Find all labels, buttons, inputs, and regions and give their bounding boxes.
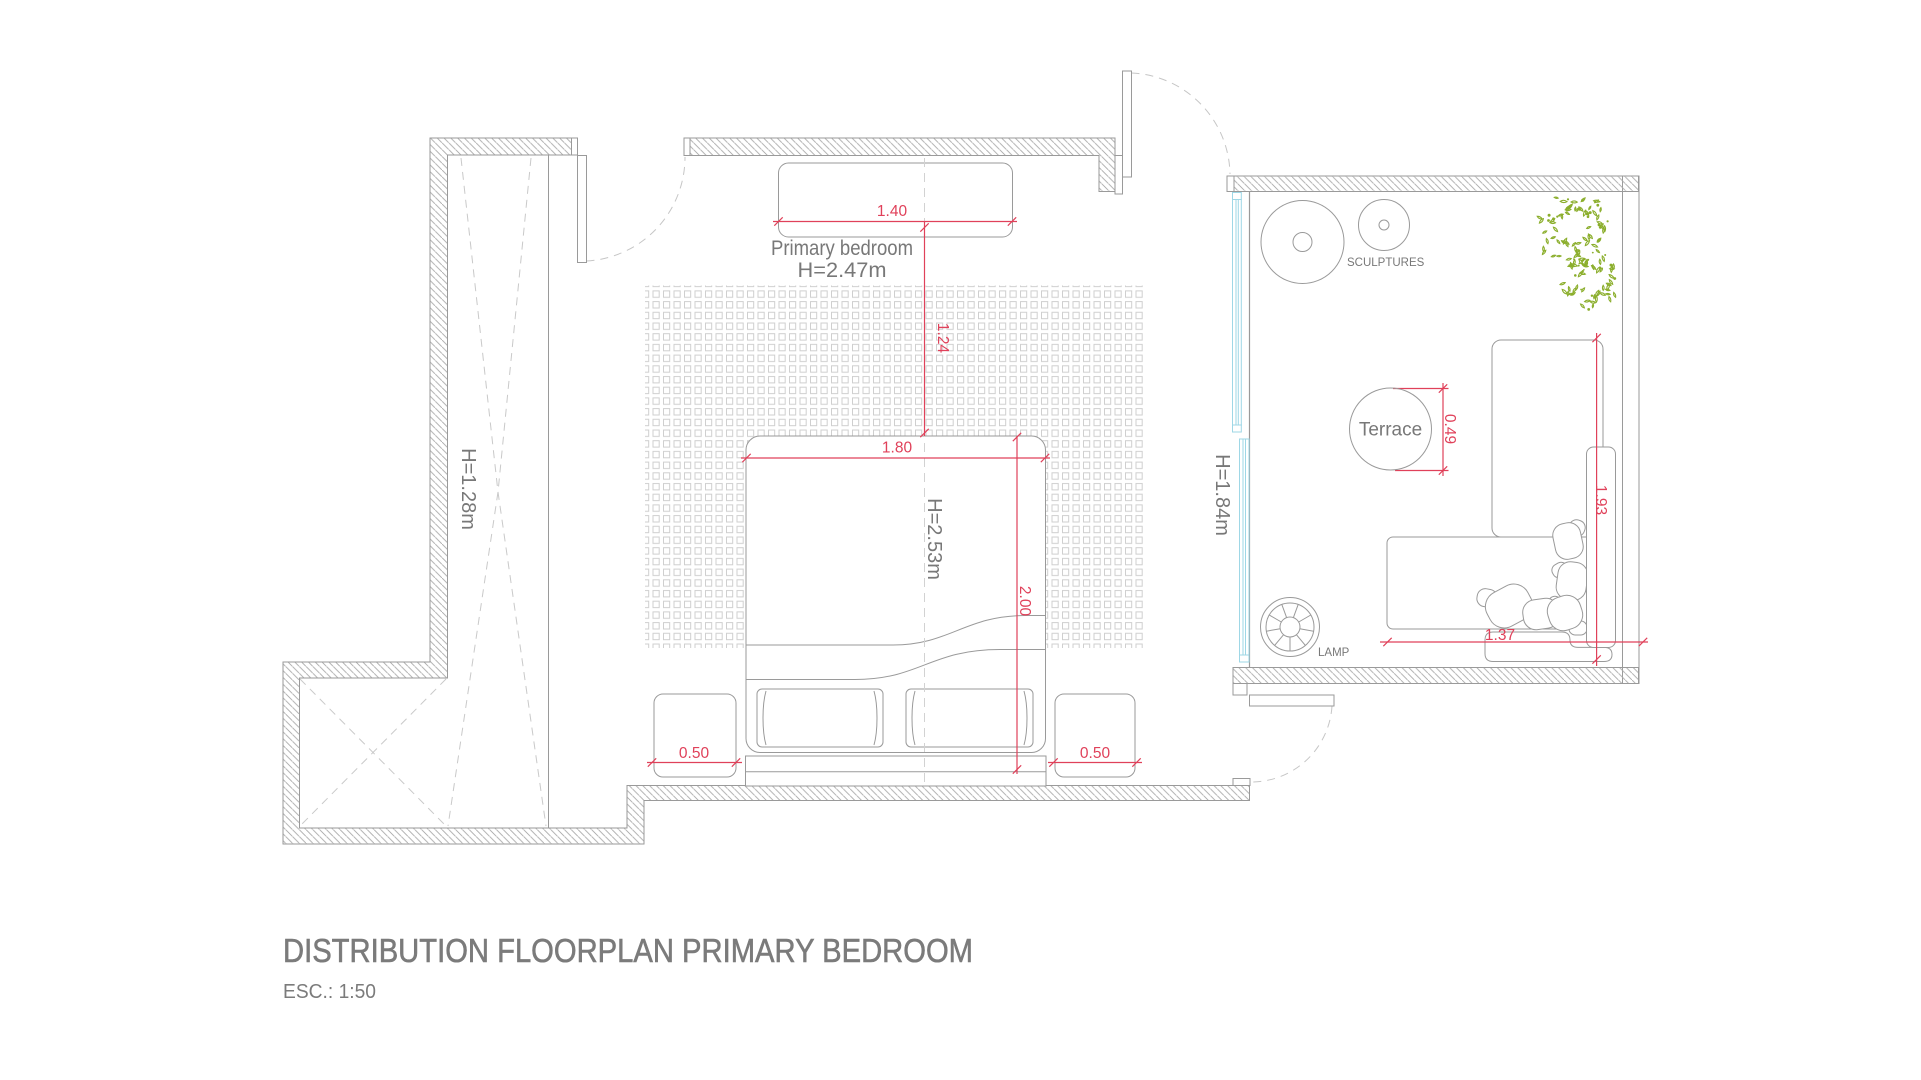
svg-text:0.50: 0.50 [679, 745, 710, 762]
svg-text:0.50: 0.50 [1080, 745, 1111, 762]
svg-text:ESC.: 1:50: ESC.: 1:50 [283, 981, 376, 1003]
svg-text:2.00: 2.00 [1016, 586, 1033, 617]
svg-text:0.49: 0.49 [1441, 414, 1458, 444]
svg-text:1.37: 1.37 [1485, 627, 1515, 644]
svg-text:H=2.53m: H=2.53m [923, 498, 945, 580]
svg-text:H=1.84m: H=1.84m [1211, 454, 1233, 536]
svg-text:1.24: 1.24 [934, 323, 951, 354]
svg-text:H=1.28m: H=1.28m [457, 448, 479, 530]
svg-text:1.93: 1.93 [1592, 485, 1609, 515]
svg-text:H=2.47m: H=2.47m [798, 259, 887, 282]
svg-text:Primary bedroom: Primary bedroom [771, 237, 913, 260]
svg-text:1.80: 1.80 [882, 440, 913, 457]
svg-text:SCULPTURES: SCULPTURES [1347, 257, 1425, 269]
svg-text:LAMP: LAMP [1318, 647, 1350, 659]
svg-text:Terrace: Terrace [1359, 420, 1422, 441]
svg-text:1.40: 1.40 [877, 203, 908, 220]
svg-text:DISTRIBUTION FLOORPLAN PRIMARY: DISTRIBUTION FLOORPLAN PRIMARY BEDROOM [283, 932, 973, 969]
